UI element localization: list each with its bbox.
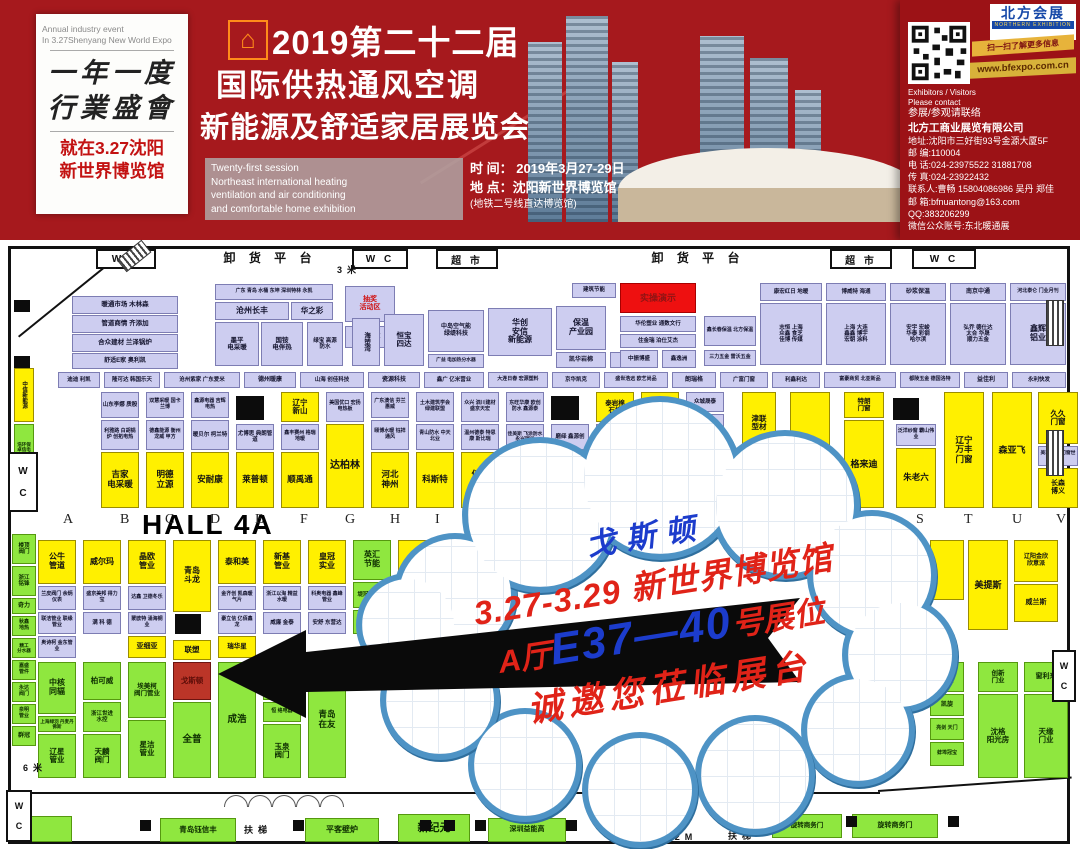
booth: 威兰斯	[1014, 584, 1058, 622]
booth: 奇力	[12, 598, 36, 614]
booth: 浙江以淘 精益水暖	[263, 586, 301, 610]
contact-en: Please contact	[908, 98, 1076, 108]
booth: 凯旋	[930, 694, 964, 716]
company-name: 北方工商业展览有限公司	[908, 121, 1076, 135]
column-letter: Q	[810, 512, 820, 528]
booth: 南京中通	[950, 283, 1006, 301]
booth: 青岛 斗龙	[173, 540, 211, 612]
booth: 华之彩	[291, 302, 333, 320]
booth: 创新 门业	[978, 662, 1018, 692]
booth: 康宏红日 地暖	[760, 283, 822, 301]
booth: 鑫广 亿米营业	[424, 372, 484, 388]
booth: 山海 创佳科技	[300, 372, 364, 388]
booth: 泰和美	[218, 540, 256, 584]
map-label: W C	[8, 452, 38, 512]
column-letter: T	[964, 512, 973, 528]
schedule-place: 地 点：沈阳新世界博览馆	[470, 179, 625, 198]
booth: 精工 分水器	[12, 638, 36, 658]
booth: 安宇 宏峻 华泰 彩钢 哈尔滨	[890, 303, 946, 365]
door-icon	[948, 816, 959, 827]
booth: 顺禹通	[281, 452, 319, 508]
column-letter: M	[615, 512, 627, 528]
booth: 国铵 电伴热	[261, 322, 303, 366]
booth: 尤博思 典朗管道	[236, 424, 274, 450]
booth: 砂浆保温	[890, 283, 946, 301]
map-label: W C	[912, 249, 976, 269]
contact-cn-intro: 参展/参观请联络	[908, 107, 1076, 121]
booth	[742, 456, 776, 508]
booth: 安耐康	[191, 452, 229, 508]
column-letter: A	[63, 512, 73, 528]
booth: 浙江世进 水控	[83, 702, 121, 732]
map-label: 卸 货 平 台	[633, 248, 763, 266]
column-letter: J	[480, 512, 485, 528]
booth: 华伦塑业 通数文行	[620, 316, 696, 332]
door-icon	[175, 614, 201, 634]
booth: 河北 神州	[371, 452, 409, 508]
booth: 秋鑫 地热	[12, 616, 36, 636]
booth: 利鑫利达	[772, 372, 820, 388]
calligraphy-line: 一年一度	[42, 56, 182, 91]
booth: 隆可达 韩国乐天	[104, 372, 160, 388]
booth: 亿达 岩棉	[461, 452, 499, 508]
booth: 晶欧 管业	[128, 540, 166, 584]
booth: 天麟 阀门	[83, 734, 121, 778]
booth: 星期八 宗森	[506, 452, 544, 508]
column-letter: S	[916, 512, 924, 528]
booth: 河北泰仑 门业月刊	[1010, 283, 1066, 301]
booth: 威廉 金泰	[263, 612, 301, 634]
booth: 大地 门业	[930, 662, 964, 692]
session-english: Twenty-first session Northeast internati…	[205, 158, 463, 220]
booth: 莱普顿	[236, 452, 274, 508]
booth: 嘉盛 管件	[12, 660, 36, 680]
booth: 上海 大连 鑫鑫 博宇 宏朝 涂料	[826, 303, 886, 365]
booth: 英汇 节能	[353, 540, 391, 580]
booth: 广东澳信 芬兰惠威	[371, 392, 409, 418]
booth: 磨绎 鑫源创	[551, 424, 589, 450]
booth: 博威特 海通	[826, 283, 886, 301]
organizer-logo-cn: 北方会展	[992, 6, 1074, 21]
booth: 豪立信 亿佰鑫龙	[218, 612, 256, 634]
booth: 京华凯克	[552, 372, 600, 388]
column-letter: C	[165, 512, 174, 528]
booth: 联塑	[173, 640, 211, 660]
booth: 普莱 斯德	[641, 392, 679, 462]
booth: 山东李娜 质殷	[101, 392, 139, 418]
booth: 青山防水 中天北业	[416, 424, 454, 450]
title-line-1: 2019第二十二届	[272, 16, 519, 64]
column-letter: U	[1012, 512, 1022, 528]
booth: 津联 型材	[742, 392, 776, 454]
booth: 辽宁 万丰 门窗	[944, 392, 984, 508]
corridor-wall	[8, 792, 880, 794]
company-zip: 邮 编:110004	[908, 147, 1076, 159]
promo-location: 就在3.27沈阳	[42, 137, 182, 160]
booth: 凯华岩棉	[556, 352, 606, 368]
promo-en-line: In 3.27Shenyang New World Expo	[42, 35, 182, 46]
booth: 金齐创 凯森暖气片	[218, 586, 256, 610]
booth: 德威克	[790, 392, 830, 508]
booth: 众兴 泗川建材 盛京天宏	[461, 392, 499, 422]
booth: 蚌埠冠宝	[930, 742, 964, 766]
booth: 兰皮阀门 余炳仪表	[38, 586, 76, 610]
booth: 利雅路 白胡锅炉 创拓电热	[101, 420, 139, 450]
booth: 鑫丰赛州 格瑞地暖	[281, 424, 319, 450]
booth: 柏可威	[83, 662, 121, 700]
company-qq: QQ:383206299	[908, 208, 1076, 220]
booth: 群冠	[12, 726, 36, 746]
booth: 沈格 阳光房	[978, 694, 1018, 778]
booth: 瓷源科技	[368, 372, 420, 388]
booth: 辽宁 新山	[281, 392, 319, 422]
map-label: 3米	[334, 262, 364, 276]
booth: 富豪商贸 北亚新品	[824, 372, 896, 388]
booth	[686, 440, 724, 470]
qr-code-icon	[908, 22, 970, 84]
booth: 管道商情 齐添加	[72, 315, 178, 333]
column-letter: E	[255, 512, 264, 528]
booth: 旋转商务门	[772, 814, 842, 838]
booth: 星洁 管业	[128, 720, 166, 778]
booth: 建筑节能	[572, 283, 616, 298]
booth: 合众建材 兰泽锅炉	[72, 334, 178, 352]
booth: 绿宝 高源 防水	[307, 322, 343, 366]
calligraphy-line: 行業盛會	[42, 91, 182, 126]
booth: 墨平 电采暖	[215, 322, 259, 366]
booth: 奥诗柯 金东管业	[38, 636, 76, 658]
door-icon	[475, 820, 486, 831]
booth: 亮剑 天门	[930, 718, 964, 740]
booth: 玉泉 阀门	[263, 724, 301, 778]
booth: 永利快发	[1012, 372, 1066, 388]
booth: 永达 阀门	[12, 682, 36, 702]
column-letter: N	[660, 512, 670, 528]
booth: 保温 产业园	[556, 306, 606, 350]
booth: 美国优口 宏扬电热板	[326, 392, 364, 422]
column-letter: L	[570, 512, 579, 528]
column-letter: P	[759, 512, 767, 528]
promo-location: 新世界博览馆	[42, 160, 182, 183]
booth: 天缘 门业	[1024, 694, 1068, 778]
map-label: 扶梯	[238, 822, 278, 836]
booth: 泰岩棉 石棉	[596, 392, 634, 422]
booth: 达柏林	[326, 424, 364, 508]
booth: 吉家 电采暖	[101, 452, 139, 508]
booth: 成浩	[218, 662, 256, 778]
booth: 沧州紫家 广东爱米	[164, 372, 240, 388]
company-person: 联系人:曹畅 15804086986 吴丹 郑佳	[908, 183, 1076, 195]
website-url: www.bfexpo.com.cn	[970, 57, 1076, 79]
column-letter: H	[390, 512, 400, 528]
booth: 浙江 铭锋	[12, 566, 36, 596]
booth: 中振博盛	[620, 350, 658, 368]
booth: 旋转商务门	[852, 814, 938, 838]
promo-en-line: Annual industry event	[42, 24, 182, 35]
booth: 中核 同辐	[38, 662, 76, 714]
booth: 实操演示	[620, 283, 696, 313]
company-tel: 电 话:024-23975522 31881708	[908, 159, 1076, 171]
map-label: 卸 货 平 台	[205, 248, 335, 266]
booth: 泉明 管业	[12, 704, 36, 724]
left-promo-card: Annual industry event In 3.27Shenyang Ne…	[36, 14, 188, 214]
booth: 德州暖康	[244, 372, 296, 388]
booth: 中信新能源	[14, 368, 34, 422]
booth: 金佰汇	[641, 464, 679, 508]
booth: 青岛 在友	[308, 662, 346, 778]
door-icon	[432, 584, 452, 602]
booth: 威尔玛	[83, 540, 121, 584]
contact-en: Exhibitors / Visitors	[908, 88, 1076, 98]
booth: 联洁管业 联缘管业	[38, 612, 76, 634]
booth	[930, 540, 964, 600]
booth: 暖通市场 木林森	[72, 296, 178, 314]
booth: 新基 管业	[263, 540, 301, 584]
title-line-2: 国际供热通风空调	[216, 60, 480, 105]
booth: 永晨 伟业	[596, 452, 634, 508]
booth: 满 科 德	[83, 612, 121, 634]
booth: 森亚飞	[992, 392, 1032, 508]
booth: 双慧采暖 国卡兰博	[146, 392, 184, 418]
booth: 中岛空气能 绿缇科技	[428, 310, 484, 352]
column-letter: D	[210, 512, 220, 528]
booth: 公牛 管道	[38, 540, 76, 584]
booth: 全普	[173, 702, 211, 778]
column-letter: O	[705, 512, 715, 528]
booth: 蒙欧特 涌海铜业	[128, 612, 166, 634]
door-icon	[893, 398, 919, 420]
booth: 恒 络电器	[263, 702, 301, 722]
booth: 亚细亚	[128, 636, 166, 658]
organizer-logo-en: NORTHERN EXHIBITION	[992, 21, 1074, 29]
booth: 格来迪	[844, 420, 884, 508]
contact-lines: Exhibitors / Visitors Please contact 参展/…	[908, 88, 1076, 232]
door-icon	[14, 356, 30, 368]
booth: 益佳利	[964, 372, 1008, 388]
booth: 上海绿羽 丹麦丹佛斯	[38, 716, 76, 732]
booth: 鑫长春保温 北方保温	[704, 316, 756, 346]
booth: 三力五金 雷沃五金	[704, 350, 756, 366]
expo-hall-roof	[618, 148, 918, 190]
door-icon	[551, 396, 579, 420]
column-letter: V	[1056, 512, 1066, 528]
poster: Annual industry event In 3.27Shenyang Ne…	[0, 0, 1080, 849]
booth: 盛京美邦 得力宝	[83, 586, 121, 610]
column-letter: I	[435, 512, 440, 528]
schedule-time: 时 间： 2019年3月27-29日	[470, 160, 625, 179]
booth: 特朗 门窗	[844, 392, 884, 418]
booth: 大连日春 宏源塑料	[488, 372, 548, 388]
booth: 深圳益能高	[488, 818, 566, 842]
column-letter: K	[525, 512, 535, 528]
booth: 众城晟泰	[686, 392, 724, 412]
radiator-icon	[1046, 300, 1064, 346]
contact-panel: 北方会展 NORTHERN EXHIBITION 扫一扫了解更多信息 www.b…	[900, 0, 1080, 240]
booth: 科斯特	[416, 452, 454, 508]
booth: 雪芬格林 纪凯	[353, 610, 391, 634]
booth: 广益 电加热分水器	[428, 354, 484, 368]
booth: 安舒 东营达	[308, 612, 346, 634]
door-icon	[236, 396, 264, 420]
house-logo-icon: ⌂	[228, 20, 268, 60]
company-fax: 传 真:024-23922432	[908, 171, 1076, 183]
door-icon	[566, 820, 577, 831]
booth: 迪迪 利凯	[58, 372, 100, 388]
booth: 明德 立源	[146, 452, 184, 508]
map-label: 超 市	[436, 249, 498, 269]
booth: 暖贝尔 柯兰特	[191, 420, 229, 450]
column-letter: R	[864, 512, 873, 528]
booth: 广东 青岛 水桶 东坤 深圳特林 永凯	[215, 284, 333, 300]
door-icon	[14, 300, 30, 312]
door-icon	[420, 820, 431, 831]
booth: 鑫源电器 吉辉电热	[191, 392, 229, 418]
booth: 德鑫能源 衡州龙威 甲方	[146, 420, 184, 450]
title-line-3: 新能源及舒适家居展览会	[200, 104, 530, 146]
booth: 志恒 上海 众鑫 食芝 佳博 传媒	[760, 303, 822, 365]
column-letter: G	[345, 512, 355, 528]
booth: 华创 安信 新能源	[488, 308, 552, 356]
map-label: 2M	[672, 830, 700, 844]
column-letter: F	[300, 512, 308, 528]
booth: 瑞华星	[218, 636, 256, 658]
radiator-icon	[1046, 430, 1064, 476]
column-letter: B	[120, 512, 129, 528]
booth: 朱老六	[896, 448, 936, 508]
door-icon	[444, 820, 455, 831]
booth: 鑫逸洲	[662, 350, 696, 368]
door-icon	[846, 816, 857, 827]
map-label: 超 市	[830, 249, 892, 269]
booth: 科奥电器 鑫峰管业	[308, 586, 346, 610]
booth: 戈斯顿	[173, 662, 211, 700]
booth: 皇冠 实业	[308, 540, 346, 584]
booth: 宁泰保温 领科实业	[596, 424, 634, 450]
floorplan: 戈斯顿 3.27-3.29 新世界博览馆 A厅E37—40号展位 诚邀您莅临展台…	[0, 240, 1080, 849]
booth: 楼顶 阀门	[12, 534, 36, 564]
company-wechat: 微信公众账号:东北暖通展	[908, 220, 1076, 232]
booth: 广富门窗	[720, 372, 768, 388]
schedule-block: 时 间： 2019年3月27-29日 地 点：沈阳新世界博览馆 (地铁二号线直达…	[470, 160, 625, 212]
booth: 达鑫 卫德冬乐	[128, 586, 166, 610]
company-address: 地址:沈阳市三好街93号金源大厦5F	[908, 135, 1076, 147]
booth: 辽阳金欣 欣意派	[1014, 540, 1058, 582]
booth: 埃美柯 阀门管业	[128, 662, 166, 718]
door-icon	[140, 820, 151, 831]
booth: 美提斯	[968, 540, 1008, 630]
booth: 都陵玉金 德国洛特	[900, 372, 960, 388]
expo-hall-base	[618, 188, 918, 222]
booth: 佳美斯 飞涂防水 永兴瑞谷	[506, 424, 544, 450]
booth: 青岛钰信丰	[160, 818, 236, 842]
booth: 海塑湾	[352, 318, 380, 366]
qr-caption: 扫一扫了解更多信息	[972, 34, 1074, 56]
company-email: 邮 箱:bfnuantong@163.com	[908, 196, 1076, 208]
booth: 弘乔 德仕达 太合 华晟 顺力五金	[950, 303, 1006, 365]
schedule-note: (地铁二号线直达博览馆)	[470, 198, 625, 213]
booth: 盛世浩远 欧艺尚品	[604, 372, 668, 388]
door-icon	[756, 816, 767, 827]
booth: 多米乐	[551, 452, 589, 508]
booth: 沧州长丰	[215, 302, 289, 320]
booth: 河北 亿能	[263, 662, 301, 700]
booth: 新纪元	[398, 814, 470, 842]
booth: 温州德泰 特思康 斯比瑞	[461, 424, 499, 450]
map-label: 6米	[18, 760, 52, 774]
booth: 东旺华康 欧创防水 鑫源泰	[506, 392, 544, 422]
booth: 春天保温	[686, 414, 724, 434]
booth: 土木建筑学会 绿建联盟	[416, 392, 454, 422]
map-label: W C	[6, 790, 32, 842]
banner: Annual industry event In 3.27Shenyang Ne…	[0, 0, 1080, 240]
booth: 朗瑞格	[672, 372, 716, 388]
map-label: W C	[1052, 650, 1076, 702]
booth: 舒适E家 奥利凯	[72, 353, 178, 369]
booth: 泛洋纱窗 霸山伟业	[896, 424, 936, 446]
booth: 颐博水暖 钰祥通风	[371, 420, 409, 450]
booth: 平客壁炉	[305, 818, 379, 842]
booth: 堤冠 亿能达	[353, 582, 391, 608]
door-icon	[293, 820, 304, 831]
map-label: 扶梯	[722, 828, 762, 842]
booth: 恒宝 四达	[384, 314, 424, 366]
booth: 住金瑞 泊仕艾杰	[620, 334, 696, 348]
